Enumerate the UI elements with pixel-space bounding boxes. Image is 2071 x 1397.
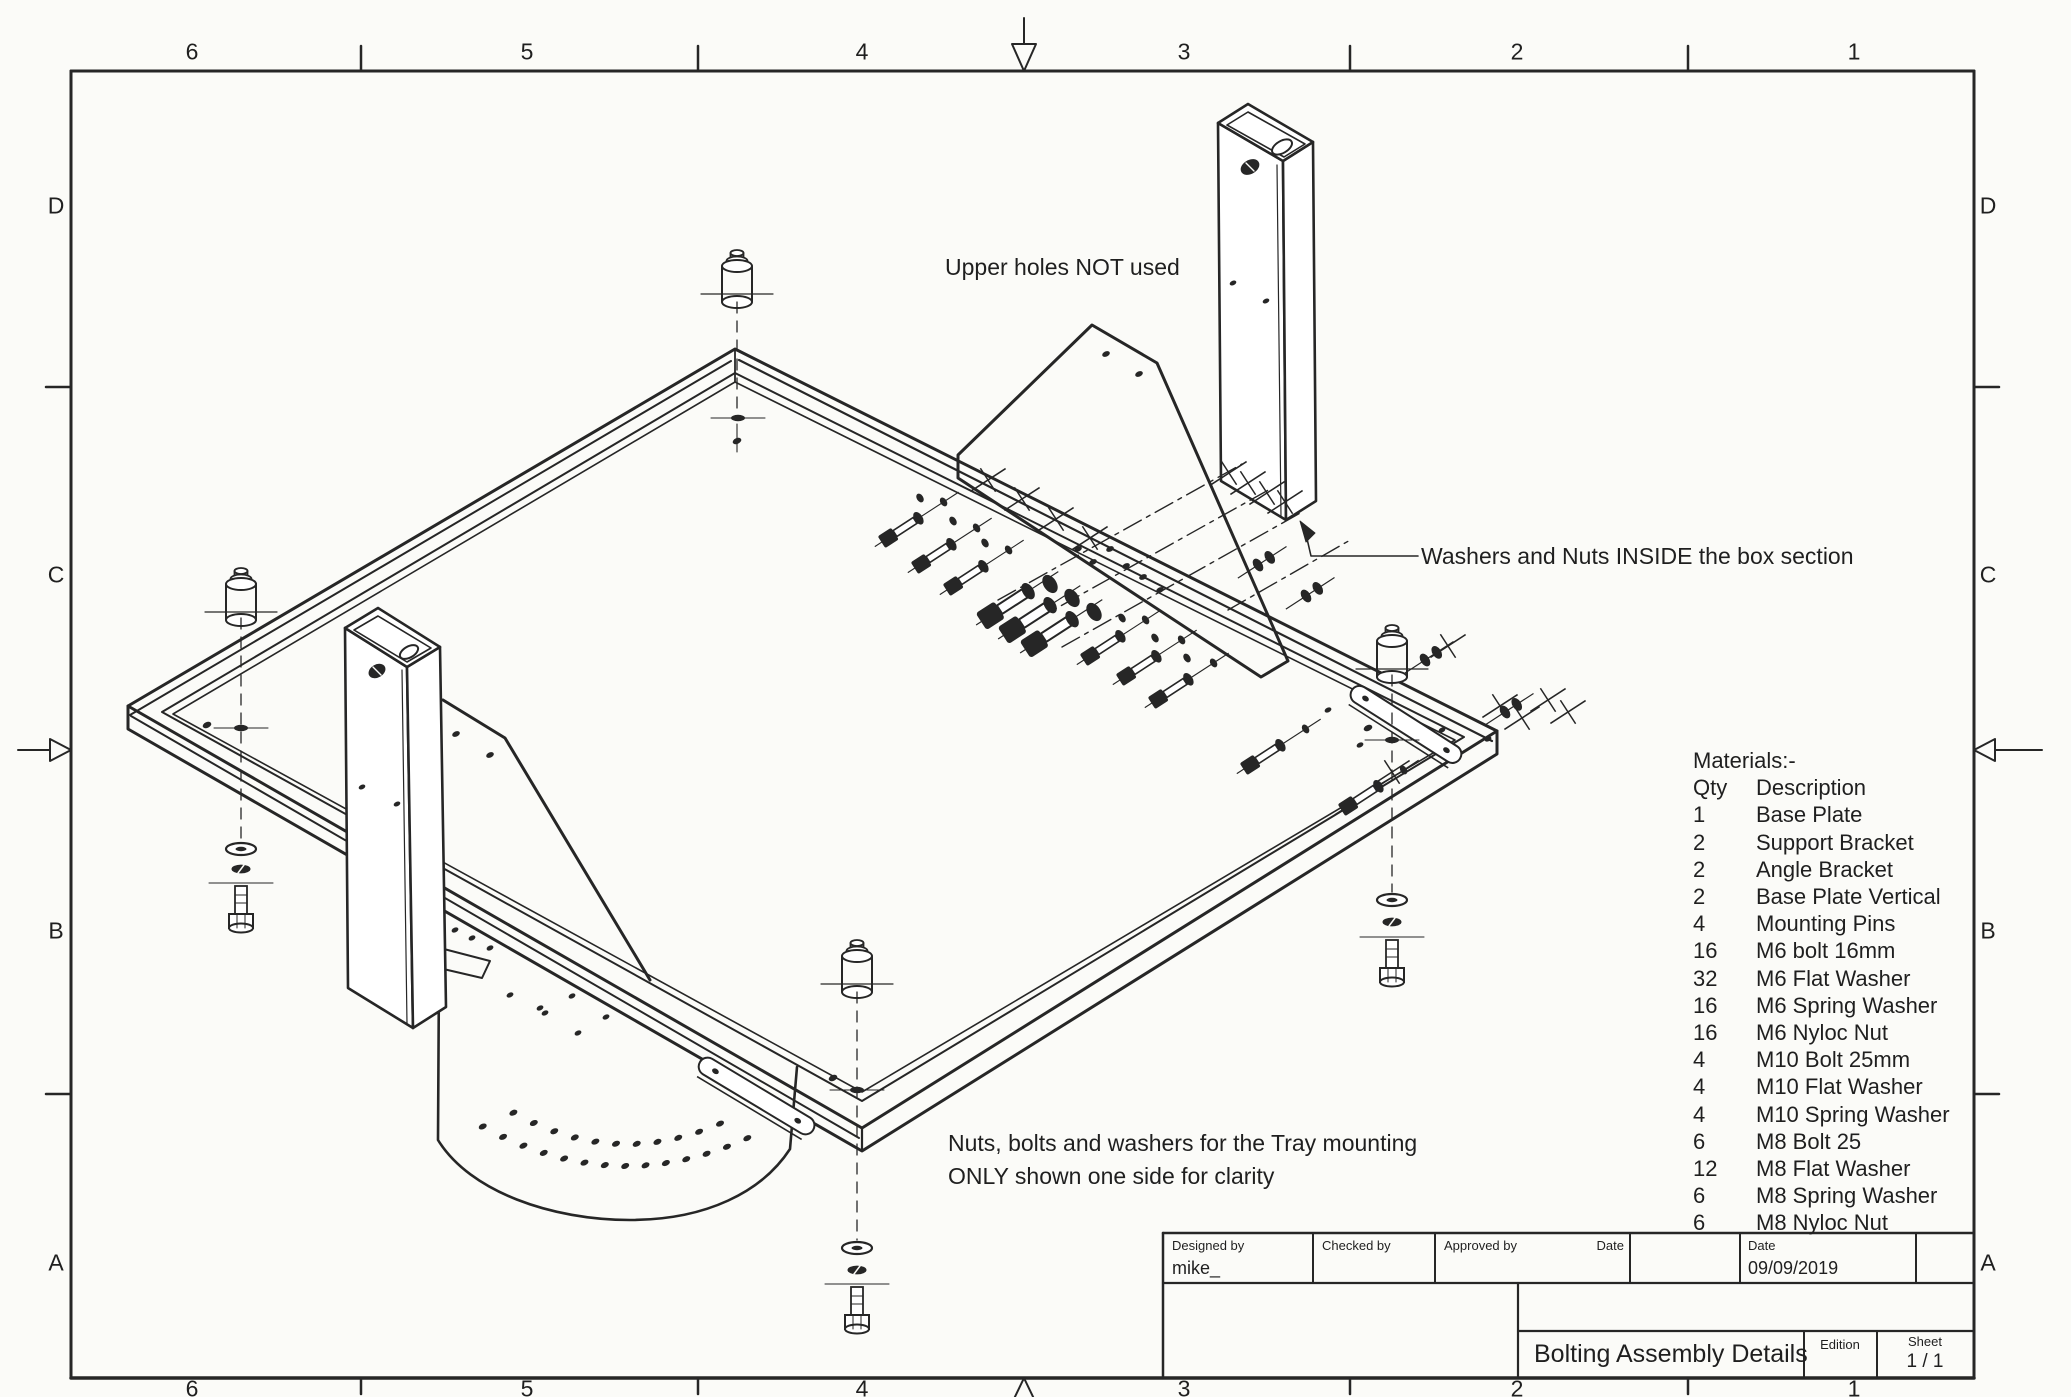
material-desc: M10 Flat Washer [1756, 1074, 1923, 1099]
materials-row: 4Mounting Pins [1693, 910, 1950, 937]
note-washers-nuts: Washers and Nuts INSIDE the box section [1421, 543, 1854, 570]
materials-list: Materials:- QtyDescription 1Base Plate 2… [1693, 747, 1950, 1237]
materials-row: 12M8 Flat Washer [1693, 1155, 1950, 1182]
materials-row: 16M6 bolt 16mm [1693, 937, 1950, 964]
note-tray-line1: Nuts, bolts and washers for the Tray mou… [948, 1127, 1417, 1160]
materials-row: 2Angle Bracket [1693, 856, 1950, 883]
zone-label-top: 4 [856, 39, 869, 66]
material-desc: M6 Spring Washer [1756, 993, 1937, 1018]
material-desc: Base Plate [1756, 802, 1862, 827]
materials-row: 4M10 Flat Washer [1693, 1073, 1950, 1100]
drawing-sheet: 6 5 4 3 2 1 6 5 4 3 2 1 D C B A D C B A … [0, 0, 2071, 1397]
material-desc: M8 Nyloc Nut [1756, 1210, 1888, 1235]
materials-title: Materials:- [1693, 747, 1950, 774]
materials-qty-header: Qty [1693, 774, 1756, 801]
note-tray-mounting: Nuts, bolts and washers for the Tray mou… [948, 1127, 1417, 1193]
date-value: 09/09/2019 [1748, 1258, 1838, 1279]
material-desc: M6 Flat Washer [1756, 966, 1910, 991]
materials-row: 6M8 Nyloc Nut [1693, 1209, 1950, 1236]
zone-label-top: 3 [1178, 39, 1191, 66]
materials-row: 16M6 Nyloc Nut [1693, 1019, 1950, 1046]
zone-label-top: 5 [521, 39, 534, 66]
material-desc: Support Bracket [1756, 830, 1914, 855]
materials-row: 1Base Plate [1693, 801, 1950, 828]
material-qty: 12 [1693, 1155, 1756, 1182]
material-desc: M6 Nyloc Nut [1756, 1020, 1888, 1045]
material-qty: 2 [1693, 883, 1756, 910]
material-qty: 6 [1693, 1209, 1756, 1236]
approved-date-label: Date [1562, 1238, 1624, 1253]
zone-label-bottom: 4 [856, 1376, 869, 1397]
designed-by-value: mike_ [1172, 1258, 1220, 1279]
materials-desc-header: Description [1756, 775, 1866, 800]
zone-label-bottom: 3 [1178, 1376, 1191, 1397]
material-desc: Base Plate Vertical [1756, 884, 1941, 909]
materials-row: 2Support Bracket [1693, 829, 1950, 856]
zone-label-left: D [48, 193, 65, 220]
zone-label-top: 1 [1848, 39, 1861, 66]
materials-row: 4M10 Spring Washer [1693, 1101, 1950, 1128]
material-qty: 2 [1693, 856, 1756, 883]
edition-label: Edition [1820, 1337, 1860, 1352]
zone-label-bottom: 2 [1511, 1376, 1524, 1397]
material-qty: 6 [1693, 1128, 1756, 1155]
material-qty: 6 [1693, 1182, 1756, 1209]
zone-label-bottom: 1 [1848, 1376, 1861, 1397]
zone-label-top: 2 [1511, 39, 1524, 66]
date-label: Date [1748, 1238, 1775, 1253]
materials-header: QtyDescription [1693, 774, 1950, 801]
zone-label-right: C [1980, 562, 1997, 589]
materials-row: 2Base Plate Vertical [1693, 883, 1950, 910]
sheet-label: Sheet [1908, 1334, 1942, 1349]
material-desc: M8 Flat Washer [1756, 1156, 1910, 1181]
material-qty: 2 [1693, 829, 1756, 856]
materials-row: 32M6 Flat Washer [1693, 965, 1950, 992]
material-qty: 16 [1693, 1019, 1756, 1046]
zone-label-top: 6 [186, 39, 199, 66]
zone-label-bottom: 5 [521, 1376, 534, 1397]
material-desc: M10 Spring Washer [1756, 1102, 1950, 1127]
material-desc: Mounting Pins [1756, 911, 1895, 936]
materials-row: 16M6 Spring Washer [1693, 992, 1950, 1019]
materials-row: 4M10 Bolt 25mm [1693, 1046, 1950, 1073]
checked-by-label: Checked by [1322, 1238, 1391, 1253]
sheet-value: 1 / 1 [1907, 1351, 1944, 1373]
note-tray-line2: ONLY shown one side for clarity [948, 1160, 1417, 1193]
material-desc: M10 Bolt 25mm [1756, 1047, 1910, 1072]
material-desc: M8 Spring Washer [1756, 1183, 1937, 1208]
material-qty: 4 [1693, 1101, 1756, 1128]
zone-label-bottom: 6 [186, 1376, 199, 1397]
zone-label-right: B [1980, 918, 1995, 945]
material-desc: Angle Bracket [1756, 857, 1893, 882]
material-qty: 4 [1693, 1046, 1756, 1073]
zone-label-left: C [48, 562, 65, 589]
drawing-title: Bolting Assembly Details [1534, 1340, 1808, 1369]
material-qty: 16 [1693, 937, 1756, 964]
materials-row: 6M8 Spring Washer [1693, 1182, 1950, 1209]
zone-label-right: D [1980, 193, 1997, 220]
material-qty: 4 [1693, 1073, 1756, 1100]
material-qty: 16 [1693, 992, 1756, 1019]
zone-label-left: A [48, 1250, 63, 1277]
designed-by-label: Designed by [1172, 1238, 1244, 1253]
material-qty: 1 [1693, 801, 1756, 828]
zone-label-left: B [48, 918, 63, 945]
note-upper-holes: Upper holes NOT used [945, 254, 1180, 281]
material-desc: M6 bolt 16mm [1756, 938, 1895, 963]
material-qty: 32 [1693, 965, 1756, 992]
material-qty: 4 [1693, 910, 1756, 937]
zone-label-right: A [1980, 1250, 1995, 1277]
material-desc: M8 Bolt 25 [1756, 1129, 1861, 1154]
materials-row: 6M8 Bolt 25 [1693, 1128, 1950, 1155]
approved-by-label: Approved by [1444, 1238, 1517, 1253]
